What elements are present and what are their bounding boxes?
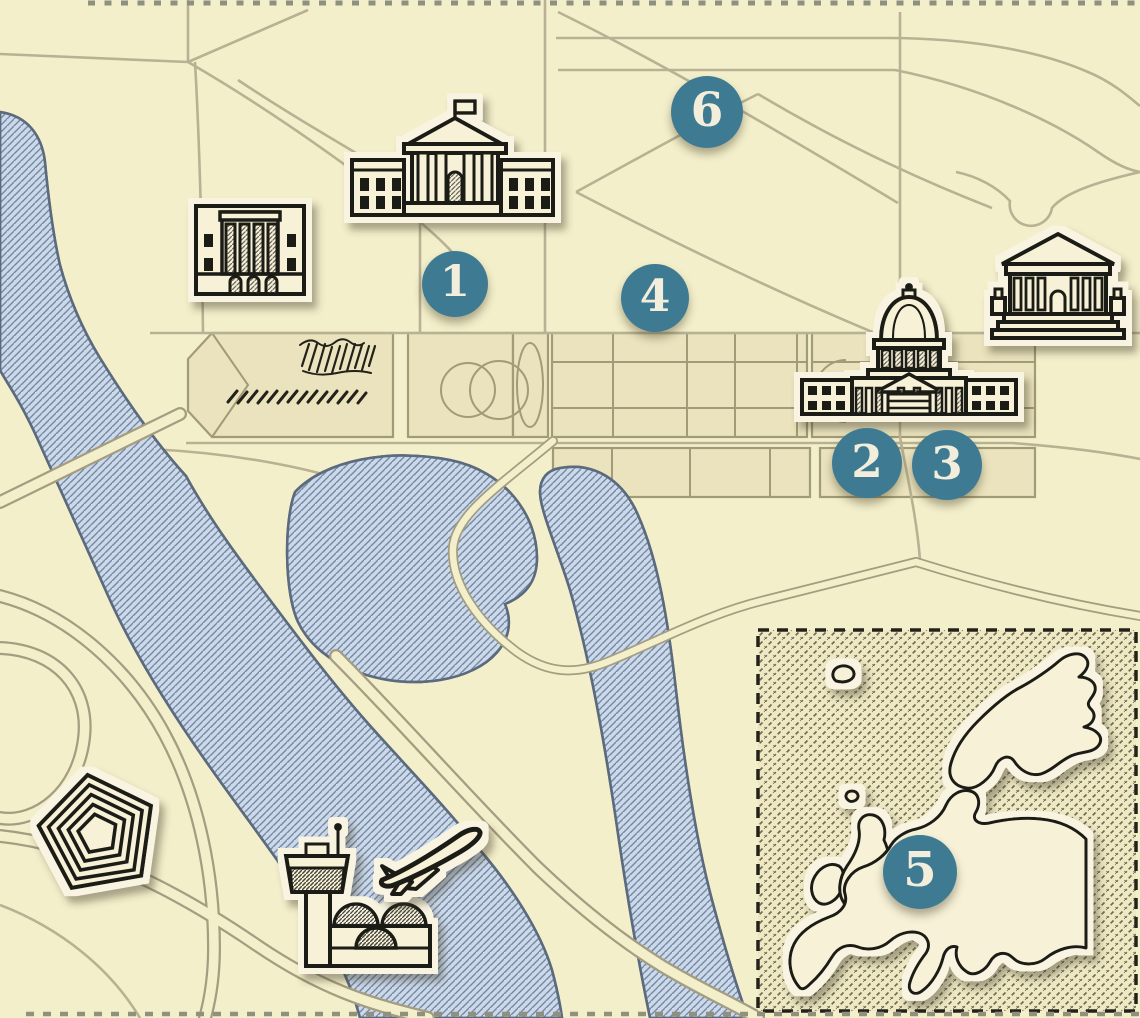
location-marker-3[interactable]: 3 — [912, 430, 982, 500]
map-illustration — [0, 0, 1140, 1018]
location-marker-6[interactable]: 6 — [671, 76, 743, 148]
marker-number: 6 — [691, 83, 724, 138]
marker-number: 3 — [931, 437, 962, 490]
marker-number: 5 — [903, 842, 936, 898]
marker-number: 4 — [640, 271, 671, 322]
marker-number: 2 — [851, 435, 882, 488]
location-marker-4[interactable]: 4 — [621, 264, 689, 332]
federal-building-icon[interactable] — [196, 206, 304, 294]
location-marker-5[interactable]: 5 — [883, 835, 957, 909]
europe-inset-map[interactable] — [758, 630, 1136, 1011]
marker-number: 1 — [440, 257, 470, 307]
map-canvas: 1 2 3 4 5 6 — [0, 0, 1140, 1018]
location-marker-2[interactable]: 2 — [832, 428, 902, 498]
location-marker-1[interactable]: 1 — [422, 251, 488, 317]
